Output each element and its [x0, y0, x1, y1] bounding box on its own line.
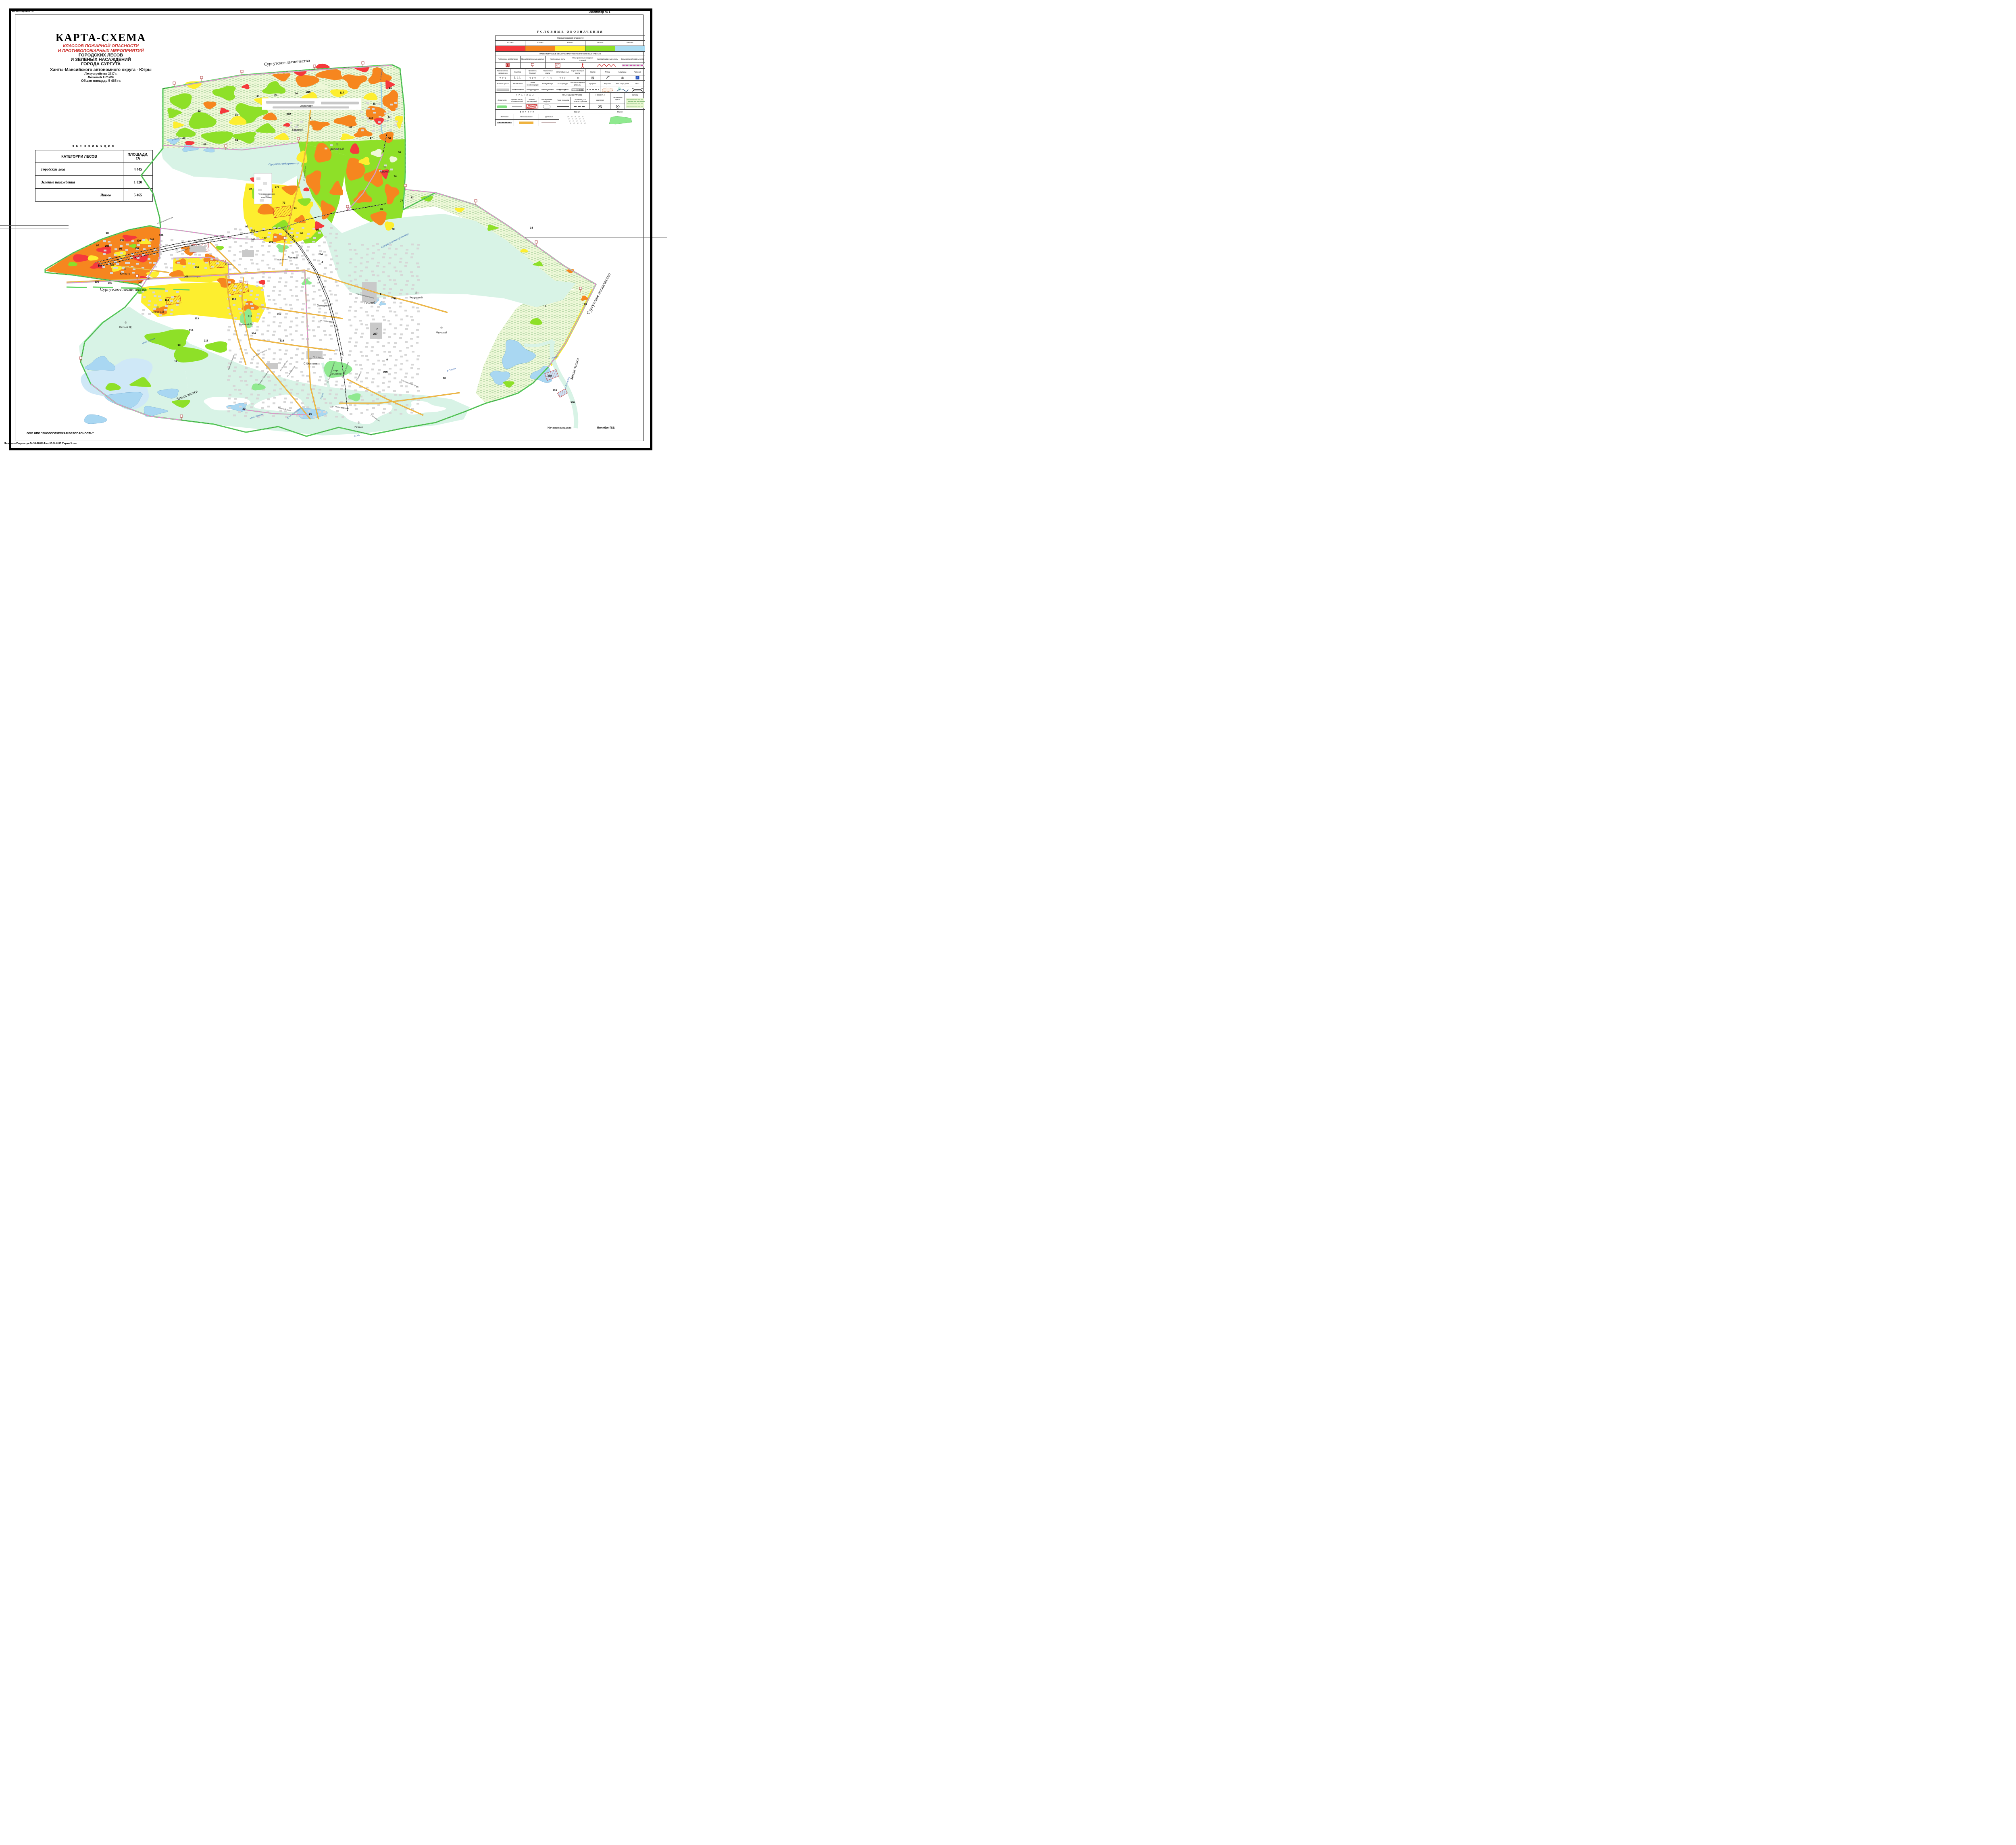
- quarter-number: 313: [248, 315, 252, 318]
- city-block: [323, 411, 326, 413]
- city-block: [256, 285, 258, 287]
- city-block: [313, 385, 316, 387]
- city-block: [399, 394, 402, 396]
- city-block: [170, 254, 173, 256]
- quarter-number: 315: [277, 313, 281, 316]
- city-block: [239, 376, 242, 378]
- city-block: [319, 376, 322, 378]
- place-label: ул. Профсоюзов: [320, 319, 334, 323]
- city-block: [239, 361, 242, 363]
- city-block: [268, 393, 271, 395]
- city-block: [233, 304, 235, 306]
- city-block: [378, 280, 381, 282]
- city-block: [312, 317, 315, 319]
- quarter-number: 104: [98, 264, 102, 267]
- city-block: [348, 319, 351, 321]
- city-block: [215, 244, 218, 246]
- quarter-number: 95: [300, 232, 303, 235]
- city-block: [306, 397, 309, 399]
- city-block: [312, 366, 315, 368]
- city-block: [323, 354, 326, 356]
- city-block: [108, 241, 110, 243]
- city-block: [319, 411, 321, 413]
- flag-marker: [241, 70, 243, 73]
- place-label: Аэропорт: [300, 105, 313, 108]
- city-block: [330, 338, 333, 340]
- city-block: [290, 357, 293, 359]
- city-block: [302, 406, 305, 408]
- city-block: [377, 306, 380, 308]
- city-block: [273, 286, 276, 288]
- city-block: [365, 324, 368, 326]
- city-block: [120, 245, 123, 247]
- city-block: [417, 266, 420, 268]
- city-block: [126, 244, 129, 246]
- city-block: [389, 279, 392, 281]
- city-block: [394, 311, 396, 313]
- hatched-plantation: [557, 389, 567, 397]
- city-block: [417, 336, 419, 338]
- city-block: [399, 381, 402, 383]
- city-block: [335, 237, 337, 239]
- airport-runway: [321, 102, 359, 104]
- city-block: [359, 275, 362, 277]
- city-block: [399, 306, 402, 308]
- city-block: [283, 131, 286, 133]
- city-block: [410, 367, 413, 369]
- city-block: [335, 312, 338, 314]
- city-block: [388, 381, 391, 383]
- city-block: [383, 297, 386, 299]
- city-block: [142, 313, 144, 315]
- city-block: [354, 404, 356, 406]
- city-block: [244, 402, 247, 404]
- quarter-number: 9: [386, 358, 388, 361]
- city-block: [404, 310, 407, 312]
- city-block: [256, 250, 259, 252]
- city-block: [365, 377, 368, 379]
- city-block: [159, 314, 162, 316]
- city-block: [323, 398, 326, 400]
- quarter-number: 110: [232, 298, 236, 301]
- city-block: [261, 407, 264, 409]
- city-block: [165, 290, 168, 292]
- city-block: [273, 321, 275, 323]
- city-block: [361, 399, 364, 401]
- city-block: [394, 409, 397, 411]
- quarter-number: 247: [369, 117, 373, 120]
- city-block: [228, 281, 231, 283]
- city-block: [324, 280, 327, 282]
- city-block: [383, 332, 385, 334]
- city-block: [417, 390, 420, 392]
- city-block: [354, 345, 357, 347]
- city-block: [177, 300, 179, 302]
- city-block: [382, 412, 385, 414]
- city-block: [335, 349, 338, 351]
- city-block: [104, 250, 106, 252]
- place-label: Пойма: [354, 426, 363, 429]
- city-block: [348, 243, 351, 245]
- quarter-number: 19: [174, 360, 177, 363]
- place-label: Юность: [120, 273, 130, 275]
- city-block: [416, 275, 419, 277]
- city-block: [279, 349, 281, 351]
- city-block: [268, 312, 271, 314]
- city-block: [394, 333, 396, 335]
- city-block: [251, 307, 254, 309]
- city-block: [365, 279, 368, 281]
- city-block: [268, 348, 271, 350]
- city-block: [330, 294, 333, 296]
- place-label: ул. Крылова: [277, 258, 287, 260]
- city-block: [234, 367, 237, 369]
- city-block: [400, 274, 403, 276]
- city-block: [400, 369, 402, 371]
- city-block: [360, 351, 362, 353]
- city-block: [291, 339, 294, 341]
- city-block: [289, 333, 292, 335]
- city-block: [240, 232, 243, 234]
- city-block: [278, 375, 281, 377]
- place-label: р. Черная: [446, 367, 456, 372]
- city-block: [244, 415, 247, 417]
- quarter-number: 204: [319, 253, 323, 256]
- city-block: [360, 381, 363, 383]
- city-block: [405, 262, 408, 264]
- city-block: [238, 308, 241, 310]
- flag-marker: [225, 145, 227, 147]
- city-block: [393, 279, 396, 281]
- city-block: [349, 249, 352, 251]
- city-block: [318, 232, 321, 234]
- city-block: [300, 290, 303, 292]
- city-block: [411, 288, 414, 290]
- city-block: [301, 321, 304, 323]
- city-block: [255, 298, 258, 300]
- quarter-number: 3: [292, 235, 294, 237]
- city-block: [137, 257, 140, 259]
- city-block: [153, 262, 156, 264]
- quarter-number: 15: [543, 305, 546, 308]
- city-block: [152, 292, 155, 294]
- city-block: [388, 262, 391, 264]
- city-block: [400, 289, 403, 291]
- city-block: [417, 323, 420, 325]
- city-block: [324, 415, 327, 417]
- city-block: [394, 102, 397, 104]
- city-block: [360, 262, 362, 264]
- city-block: [359, 364, 362, 366]
- city-block: [393, 302, 396, 304]
- city-block: [334, 250, 337, 252]
- city-block: [417, 244, 420, 246]
- city-block: [376, 243, 379, 245]
- quarter-number: 58: [388, 137, 391, 140]
- city-block: [411, 364, 414, 366]
- city-block: [387, 342, 390, 344]
- city-block: [366, 342, 369, 344]
- city-block: [319, 263, 321, 265]
- city-block: [372, 108, 375, 110]
- city-block: [284, 353, 287, 355]
- city-block: [360, 307, 362, 309]
- flag-marker: [579, 287, 582, 289]
- city-block: [354, 249, 356, 251]
- quarter-number: 69: [203, 143, 206, 146]
- city-block: [312, 388, 315, 390]
- city-block: [295, 317, 298, 319]
- city-block: [233, 289, 236, 291]
- city-block: [330, 325, 333, 327]
- quarter-number: 74: [394, 175, 397, 178]
- quarter-number: 99: [119, 248, 122, 250]
- city-block: [137, 244, 140, 246]
- city-block: [389, 323, 392, 325]
- city-block: [279, 290, 281, 292]
- city-block: [234, 317, 237, 319]
- city-block: [296, 236, 298, 238]
- city-block: [274, 236, 277, 238]
- settlement-mark-dot: [310, 358, 310, 359]
- city-block: [412, 395, 414, 397]
- city-block: [400, 413, 402, 415]
- quarter-number: 2: [310, 117, 311, 120]
- city-block: [366, 372, 369, 374]
- city-block: [379, 116, 381, 118]
- place-label: Госснаб: [364, 301, 375, 304]
- city-block: [244, 334, 247, 336]
- place-label: ул. Энергетиков: [286, 365, 296, 378]
- city-block: [273, 299, 275, 301]
- city-block: [394, 267, 396, 269]
- city-block: [361, 333, 364, 335]
- city-block: [274, 258, 277, 260]
- city-block: [405, 328, 408, 330]
- city-block: [373, 125, 375, 127]
- city-block: [406, 404, 408, 406]
- city-block: [245, 242, 248, 244]
- quarter-number: 301: [150, 238, 154, 241]
- city-block: [251, 262, 254, 264]
- city-block: [250, 246, 253, 248]
- city-block: [360, 257, 363, 259]
- quarter-number: 31: [389, 87, 392, 90]
- city-block: [291, 376, 294, 378]
- city-block: [278, 281, 281, 283]
- city-block: [262, 285, 265, 287]
- city-block: [257, 313, 260, 315]
- city-block: [324, 236, 327, 238]
- city-block: [244, 349, 247, 351]
- flag-marker: [297, 137, 300, 140]
- city-block: [318, 289, 321, 291]
- city-block: [313, 259, 316, 261]
- city-block: [361, 129, 364, 131]
- place-label: Финский: [436, 331, 447, 334]
- city-block: [355, 297, 358, 299]
- city-block: [329, 242, 332, 244]
- city-block: [355, 364, 358, 366]
- city-block: [302, 375, 304, 377]
- city-block: [279, 410, 282, 412]
- city-block: [306, 406, 309, 408]
- city-block: [272, 268, 275, 270]
- city-block: [400, 385, 403, 387]
- city-block: [268, 277, 271, 279]
- city-block: [390, 169, 393, 171]
- city-block: [296, 393, 299, 395]
- city-block: [238, 411, 241, 413]
- city-block: [371, 306, 373, 308]
- city-block: [348, 310, 351, 312]
- city-block: [246, 384, 248, 386]
- city-block: [383, 395, 386, 397]
- city-block: [239, 406, 242, 408]
- city-block: [366, 102, 369, 104]
- quarter-number: 20: [242, 408, 246, 410]
- city-block: [267, 361, 270, 363]
- city-block: [154, 295, 156, 297]
- quarter-number: 13: [410, 196, 414, 199]
- city-block: [307, 233, 310, 235]
- quarter-number: 87: [349, 126, 352, 129]
- city-block: [416, 307, 419, 309]
- city-block: [312, 320, 314, 322]
- city-block: [256, 263, 258, 265]
- city-block: [244, 380, 247, 382]
- city-block: [355, 329, 358, 331]
- city-block: [245, 367, 248, 369]
- city-block: [393, 346, 396, 348]
- city-block: [279, 307, 282, 309]
- city-block: [329, 233, 332, 235]
- city-block: [319, 308, 321, 310]
- green-dash-segment: [67, 287, 87, 287]
- city-block: [404, 354, 407, 356]
- quarter-number: 100: [135, 247, 139, 250]
- city-block: [300, 334, 303, 336]
- city-block: [377, 275, 379, 277]
- city-block: [395, 314, 398, 317]
- city-block: [194, 254, 197, 256]
- city-block: [143, 248, 146, 250]
- city-block: [341, 385, 344, 387]
- city-block: [334, 397, 337, 399]
- city-block: [290, 232, 293, 234]
- quarter-number: 4: [321, 261, 323, 264]
- city-block: [290, 263, 293, 265]
- city-block: [285, 281, 287, 283]
- city-block: [395, 121, 398, 123]
- place-label: Тюменский тракт: [186, 275, 201, 278]
- city-block: [239, 251, 242, 253]
- city-block: [274, 384, 277, 386]
- city-block: [400, 356, 403, 358]
- place-label: Комсомольский пр-кт: [401, 379, 419, 387]
- quarter-number: 22: [198, 110, 201, 112]
- city-block: [227, 231, 230, 233]
- city-block: [285, 313, 288, 315]
- city-block: [411, 319, 414, 321]
- city-block: [261, 370, 264, 372]
- place-label: кладбище: [261, 196, 272, 199]
- quarter-number: 14: [530, 227, 533, 229]
- city-block: [216, 262, 219, 264]
- flag-marker: [136, 275, 138, 277]
- quarter-number: 46: [373, 103, 376, 106]
- city-block: [257, 394, 260, 396]
- city-block: [262, 254, 264, 256]
- city-block: [257, 269, 260, 271]
- city-block: [329, 389, 332, 391]
- city-block: [400, 333, 403, 335]
- city-block: [410, 256, 413, 258]
- city-block: [262, 402, 264, 404]
- quarter-number: 318: [548, 375, 552, 377]
- city-block: [244, 268, 247, 270]
- city-block: [228, 398, 231, 400]
- city-block: [366, 327, 369, 329]
- city-block: [171, 296, 174, 298]
- quarter-number: 206: [392, 297, 396, 300]
- city-block: [227, 410, 230, 412]
- quarter-number: 293: [269, 241, 273, 244]
- city-block: [228, 250, 231, 252]
- city-block: [406, 315, 408, 317]
- quarter-number: 76: [380, 208, 383, 211]
- city-block: [289, 126, 292, 128]
- city-block: [400, 302, 402, 304]
- city-block: [295, 354, 298, 356]
- city-block: [354, 301, 357, 303]
- city-block: [377, 360, 380, 362]
- city-block: [267, 236, 270, 238]
- quarter-number: 105: [95, 281, 99, 283]
- city-block: [395, 248, 398, 250]
- cemetery-block: [263, 182, 267, 185]
- quarter-number: 299: [120, 239, 125, 242]
- city-block: [382, 382, 385, 384]
- settlement-mark-dot: [416, 292, 416, 293]
- city-block: [256, 398, 259, 400]
- city-block: [302, 352, 304, 354]
- city-block: [279, 322, 282, 324]
- city-block: [312, 241, 315, 243]
- city-block: [388, 248, 391, 250]
- city-block: [170, 313, 173, 315]
- city-block: [302, 227, 304, 229]
- city-block: [240, 380, 243, 382]
- city-block: [209, 253, 212, 255]
- city-block: [372, 363, 375, 365]
- city-block: [273, 242, 276, 244]
- quarter-number: 108: [195, 266, 199, 269]
- city-block: [371, 381, 374, 383]
- city-block: [261, 333, 264, 335]
- city-block: [273, 389, 276, 391]
- city-block: [412, 351, 414, 353]
- city-block: [103, 253, 106, 255]
- city-block: [301, 286, 304, 288]
- city-block: [395, 359, 398, 361]
- city-block: [267, 376, 270, 378]
- city-block: [238, 264, 241, 266]
- city-block: [350, 258, 352, 260]
- city-block: [279, 388, 282, 390]
- city-block: [278, 362, 281, 364]
- city-block: [229, 394, 231, 396]
